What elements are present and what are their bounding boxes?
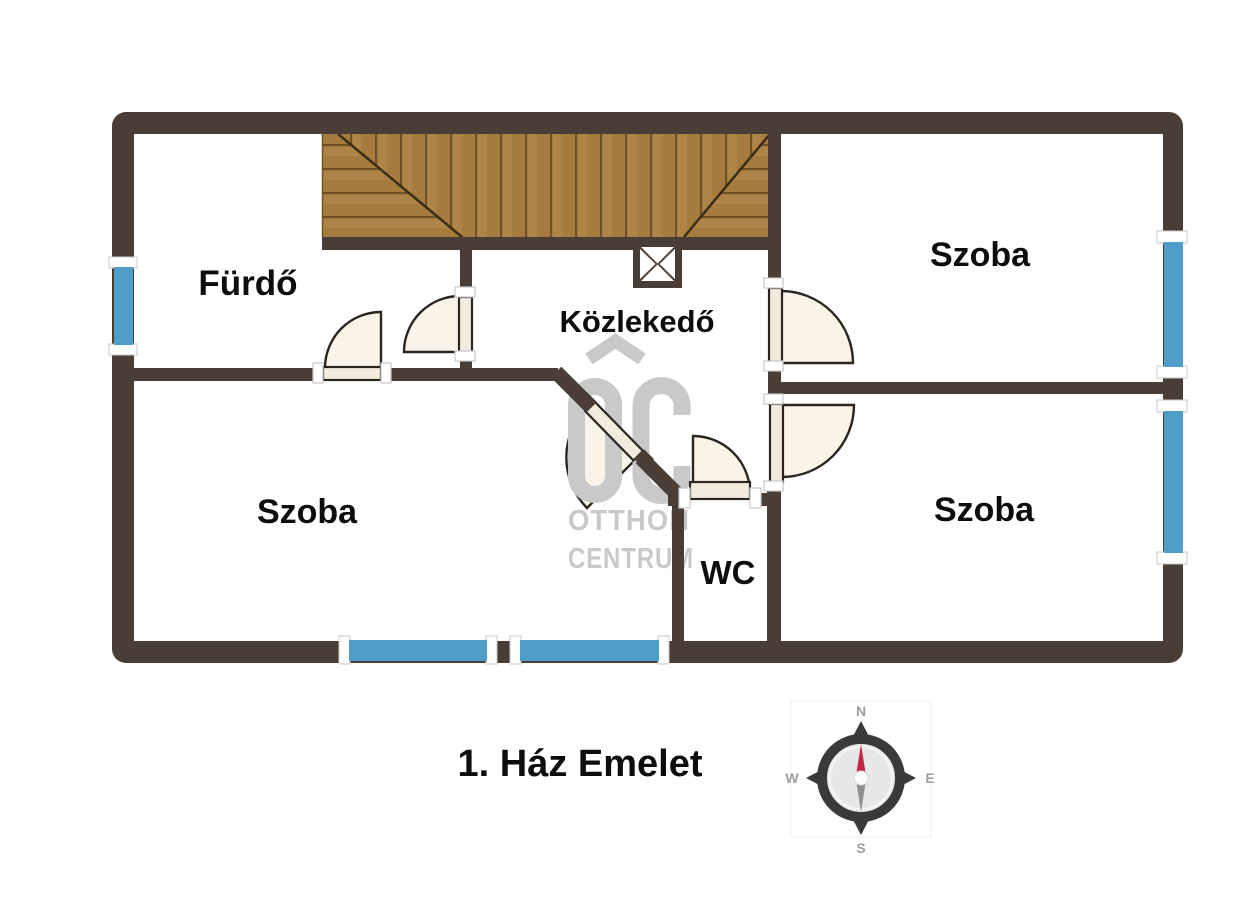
floor-plan-canvas: OTTHON CENTRUM [0, 0, 1260, 900]
window-bottom-left-1 [349, 640, 487, 661]
compass-label-north: N [856, 703, 866, 719]
hinge-cap [764, 361, 783, 371]
staircase [322, 134, 770, 238]
wall-rooms-right-divider [768, 382, 1163, 394]
door-leaf-bathroom-south [323, 367, 381, 380]
compass-label-west: W [785, 770, 799, 786]
window-bathroom [114, 267, 133, 345]
window-sill [1157, 552, 1187, 564]
window-sill [1157, 400, 1187, 412]
room-label-hallway: Közlekedő [559, 304, 714, 339]
window-sill [1157, 366, 1187, 378]
hinge-cap [764, 481, 783, 491]
compass-label-south: S [856, 840, 865, 856]
wall-bathroom-south-right [383, 368, 558, 381]
room-label-room-top-right: Szoba [930, 236, 1031, 274]
window-sill [486, 636, 497, 664]
hinge-cap [381, 363, 391, 383]
door-leaf-bathroom-east [459, 297, 472, 352]
room-label-room-bottom-left: Szoba [257, 493, 358, 531]
compass-hub [854, 771, 868, 785]
room-label-bathroom: Fürdő [198, 264, 297, 303]
wall-bathroom-south-left [134, 368, 322, 381]
watermark-line1: OTTHON [568, 505, 690, 537]
wall-stairs-bottom [322, 237, 768, 250]
hinge-cap [764, 394, 783, 404]
compass-label-east: E [925, 770, 934, 786]
floor-plan-page: OTTHON CENTRUM [0, 0, 1260, 900]
room-label-wc: WC [701, 554, 756, 591]
hinge-cap [679, 488, 690, 508]
window-sill [339, 636, 350, 664]
room-label-room-bottom-right: Szoba [934, 491, 1035, 529]
door-leaf-room-top-right [769, 288, 782, 362]
chimney-symbol [633, 240, 682, 288]
window-room-bottom-right [1164, 411, 1183, 553]
hinge-cap [455, 287, 475, 297]
hinge-cap [750, 488, 761, 508]
door-leaf-wc [690, 482, 750, 499]
wall-hallway-east-upper [768, 134, 781, 284]
window-sill [510, 636, 521, 664]
door-leaf-room-bottom-right [770, 404, 783, 482]
hinge-cap [455, 351, 475, 361]
wall-wc-west [672, 497, 684, 641]
wall-wc-east [767, 482, 781, 641]
plan-title: 1. Ház Emelet [458, 743, 703, 785]
window-sill [109, 257, 137, 268]
hinge-cap [313, 363, 323, 383]
window-sill [658, 636, 669, 664]
window-sill [1157, 231, 1187, 243]
window-bottom-left-2 [520, 640, 659, 661]
window-sill [109, 344, 137, 355]
window-room-top-right [1164, 242, 1183, 367]
hinge-cap [764, 278, 783, 288]
